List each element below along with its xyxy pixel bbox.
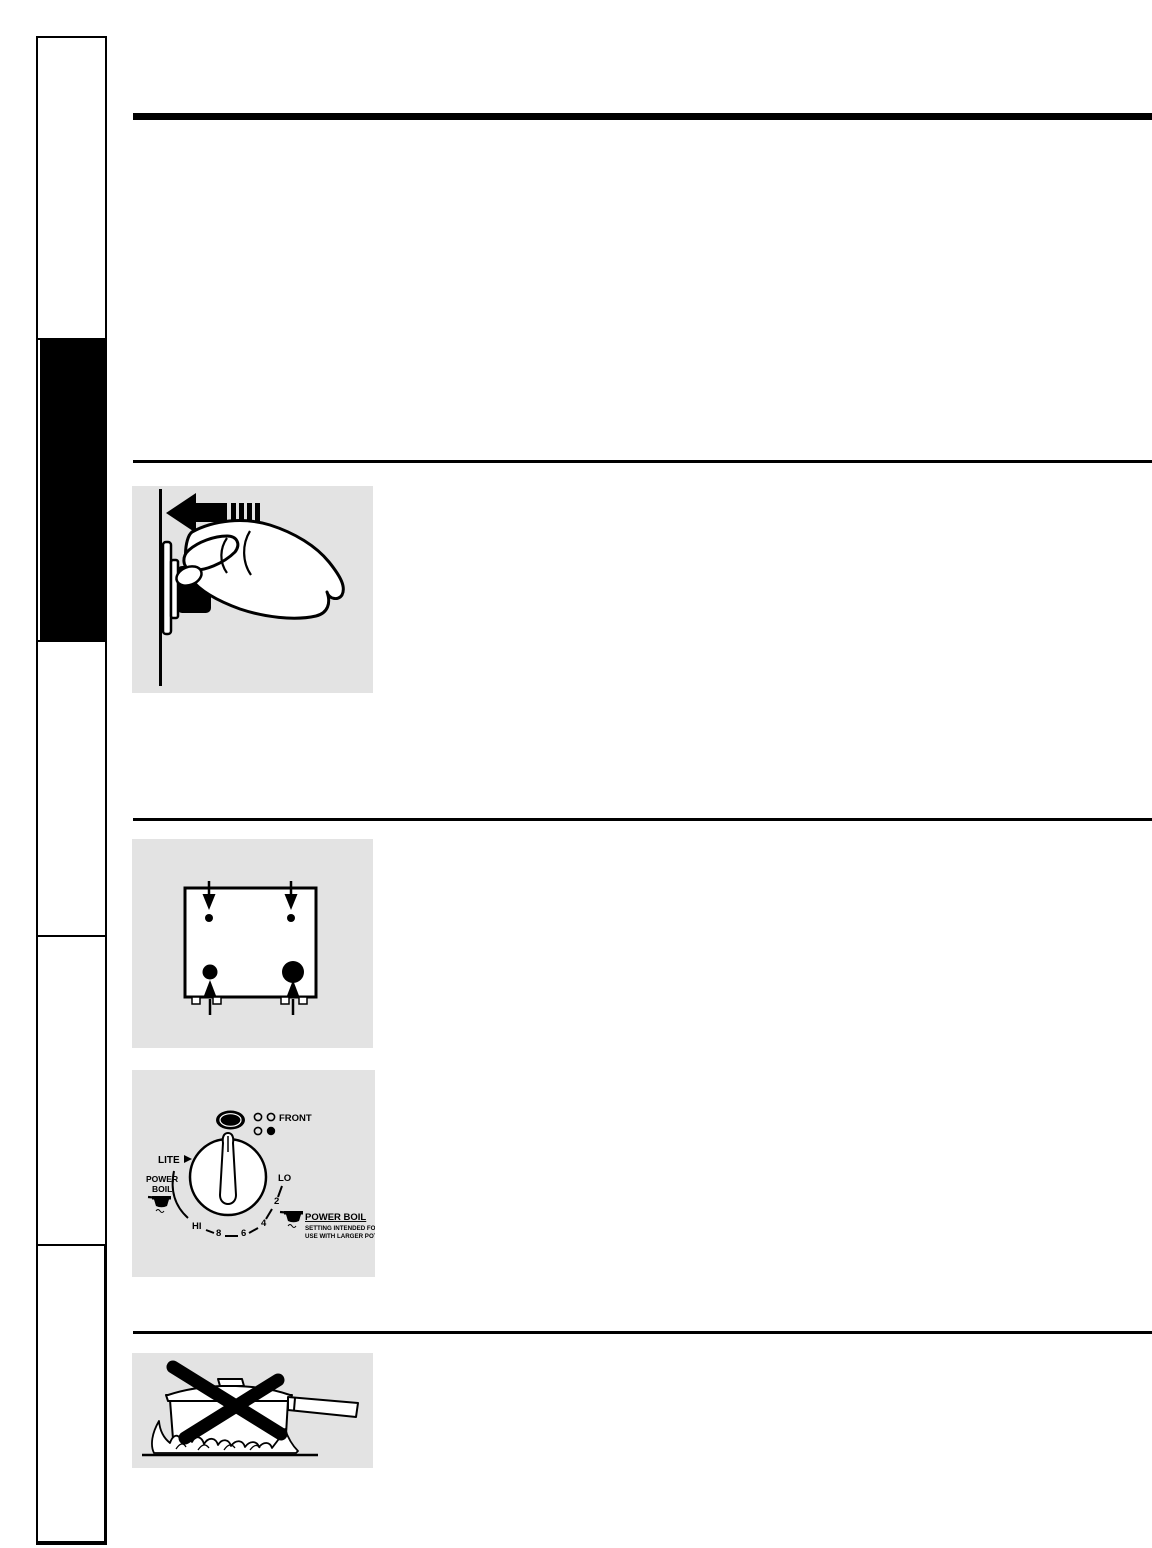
knob-push-illustration bbox=[132, 486, 373, 693]
section-rule-2 bbox=[133, 818, 1152, 821]
off-badge: OFF bbox=[216, 1111, 245, 1130]
cooktop-diagram-illustration bbox=[132, 839, 373, 1048]
lite-arrow-icon bbox=[184, 1155, 192, 1163]
sidebar-tab-1 bbox=[36, 36, 107, 340]
pot-icon bbox=[280, 1211, 303, 1228]
svg-text:SETTING INTENDED FOR: SETTING INTENDED FOR bbox=[305, 1225, 375, 1232]
manual-page: OFF FRONT LITE POWER BOIL bbox=[0, 0, 1152, 1548]
svg-text:BOIL: BOIL bbox=[152, 1184, 172, 1194]
lid-handle bbox=[218, 1379, 244, 1386]
figure-no-flames-up-sides bbox=[132, 1353, 373, 1468]
power-boil-right-note: POWER BOIL SETTING INTENDED FOR USE WITH… bbox=[280, 1211, 375, 1240]
svg-text:LO: LO bbox=[278, 1173, 291, 1184]
section-rule-3 bbox=[133, 1331, 1152, 1334]
pot-icon bbox=[148, 1196, 171, 1213]
section-rule-1 bbox=[133, 460, 1152, 463]
front-label: FRONT bbox=[279, 1113, 312, 1124]
sidebar-tab-3 bbox=[36, 640, 107, 937]
sidebar-tab-5 bbox=[36, 1244, 107, 1545]
selected-burner-dot bbox=[267, 1127, 275, 1135]
svg-text:6: 6 bbox=[241, 1228, 246, 1239]
control-dial-illustration: OFF FRONT LITE POWER BOIL bbox=[132, 1070, 375, 1277]
lite-label: LITE bbox=[158, 1155, 180, 1166]
figure-cooktop-diagram bbox=[132, 839, 373, 1048]
svg-text:POWER BOIL: POWER BOIL bbox=[305, 1212, 366, 1223]
svg-text:USE WITH LARGER POTS: USE WITH LARGER POTS bbox=[305, 1233, 375, 1240]
sidebar-tab-2-active bbox=[36, 338, 107, 642]
control-panel-edge bbox=[159, 489, 162, 686]
figure-control-dial: OFF FRONT LITE POWER BOIL bbox=[132, 1070, 375, 1277]
svg-text:4: 4 bbox=[261, 1218, 267, 1229]
crossed-out-pot-illustration bbox=[132, 1353, 373, 1468]
svg-text:HI: HI bbox=[192, 1221, 202, 1232]
pan-handle bbox=[288, 1397, 358, 1417]
svg-text:2: 2 bbox=[274, 1196, 279, 1207]
burner-position-indicator: FRONT bbox=[254, 1113, 312, 1135]
knob-dial bbox=[190, 1133, 266, 1215]
header-rule bbox=[133, 113, 1152, 120]
off-label: OFF bbox=[222, 1116, 238, 1125]
sidebar-tab-4 bbox=[36, 935, 107, 1246]
figure-knob-push bbox=[132, 486, 373, 693]
svg-text:8: 8 bbox=[216, 1228, 221, 1239]
